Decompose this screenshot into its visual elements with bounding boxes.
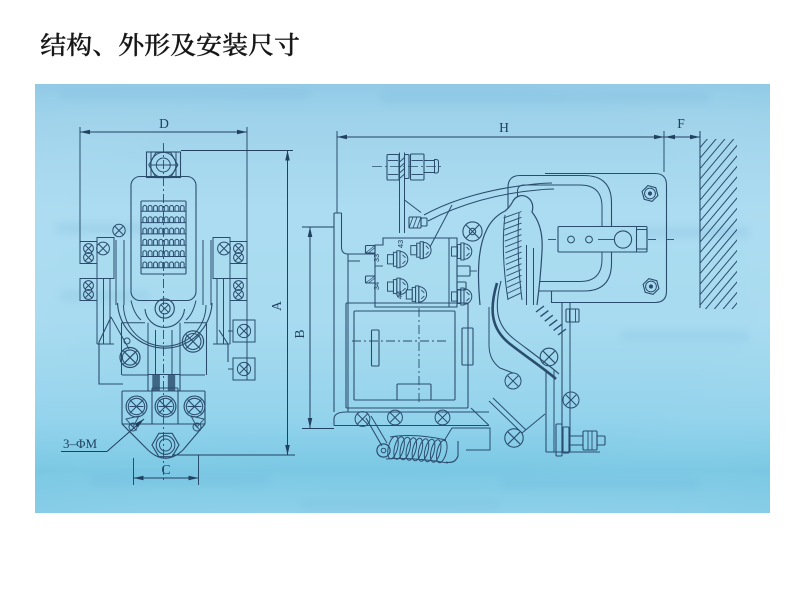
svg-text:H: H bbox=[499, 120, 509, 135]
svg-text:43: 43 bbox=[396, 240, 405, 248]
svg-text:C: C bbox=[161, 462, 170, 477]
svg-text:B: B bbox=[292, 329, 307, 338]
svg-text:D: D bbox=[159, 116, 169, 131]
svg-text:33: 33 bbox=[372, 254, 381, 262]
svg-text:3–ΦM: 3–ΦM bbox=[63, 436, 98, 451]
svg-text:F: F bbox=[677, 116, 685, 131]
svg-text:44: 44 bbox=[395, 291, 404, 299]
svg-text:A: A bbox=[269, 301, 284, 311]
